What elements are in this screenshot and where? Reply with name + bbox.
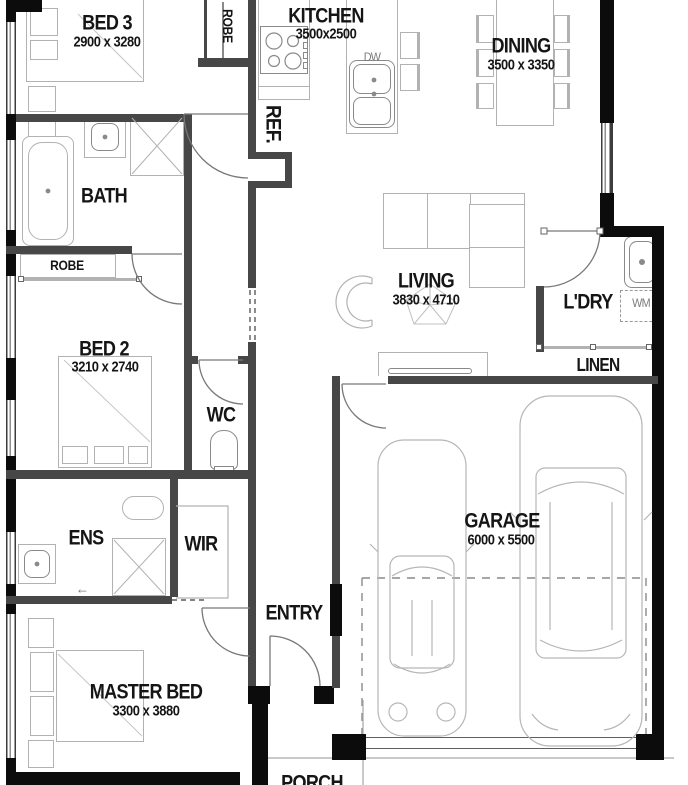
room-dims-bed2: 3210 x 2740 bbox=[71, 360, 138, 375]
room-label-living: LIVING bbox=[398, 271, 454, 292]
room-dims-master: 3300 x 3880 bbox=[112, 704, 179, 719]
dishwasher-label: DW bbox=[364, 51, 381, 63]
room-dims-garage: 6000 x 5500 bbox=[467, 533, 534, 548]
laundry-door-arc bbox=[544, 231, 600, 287]
floor-plan: BED 3 2900 x 3280 ROBE KITCHEN 3500x2500… bbox=[0, 0, 688, 785]
washing-machine-label: WM bbox=[632, 297, 650, 309]
bed2-door-arc bbox=[132, 254, 182, 304]
fridge-label: REF. bbox=[263, 105, 284, 143]
garage-recess-dashed bbox=[362, 578, 646, 734]
room-label-kitchen: KITCHEN bbox=[288, 6, 363, 27]
wc-door-arc bbox=[199, 360, 243, 404]
hall-door-arc bbox=[184, 114, 248, 178]
door-leaf-block bbox=[541, 228, 547, 234]
car-small bbox=[370, 440, 474, 736]
room-label-wc: WC bbox=[207, 405, 236, 426]
armchair bbox=[336, 276, 372, 328]
car-large bbox=[510, 396, 652, 746]
master-door-arc bbox=[202, 608, 250, 656]
entry-direction-arrow: ← bbox=[76, 582, 89, 597]
room-dims-dining: 3500 x 3350 bbox=[487, 58, 554, 73]
front-door-arc bbox=[270, 636, 320, 686]
room-label-linen: LINEN bbox=[576, 356, 619, 374]
room-label-bed3: BED 3 bbox=[82, 13, 132, 34]
door-leaf-block bbox=[597, 228, 603, 234]
room-dims-living: 3830 x 4710 bbox=[392, 293, 459, 308]
tap-dots bbox=[35, 78, 645, 567]
overlay-graphics bbox=[0, 0, 688, 785]
room-label-bed2: BED 2 bbox=[79, 339, 129, 360]
room-label-entry: ENTRY bbox=[265, 603, 322, 624]
room-label-robe-bed2: ROBE bbox=[50, 258, 84, 272]
room-label-wir: WIR bbox=[184, 534, 217, 555]
room-dims-bed3: 2900 x 3280 bbox=[73, 35, 140, 50]
room-label-dining: DINING bbox=[491, 36, 550, 57]
room-label-bath: BATH bbox=[81, 186, 127, 207]
room-label-ens: ENS bbox=[68, 528, 103, 549]
garage-door-arc bbox=[342, 384, 386, 428]
room-label-robe-bed3: ROBE bbox=[221, 9, 235, 43]
room-label-garage: GARAGE bbox=[464, 511, 539, 532]
room-label-porch: PORCH bbox=[281, 773, 343, 785]
room-dims-kitchen: 3500x2500 bbox=[296, 27, 357, 42]
room-label-master: MASTER BED bbox=[90, 682, 203, 703]
room-label-laundry: L'DRY bbox=[563, 292, 612, 313]
